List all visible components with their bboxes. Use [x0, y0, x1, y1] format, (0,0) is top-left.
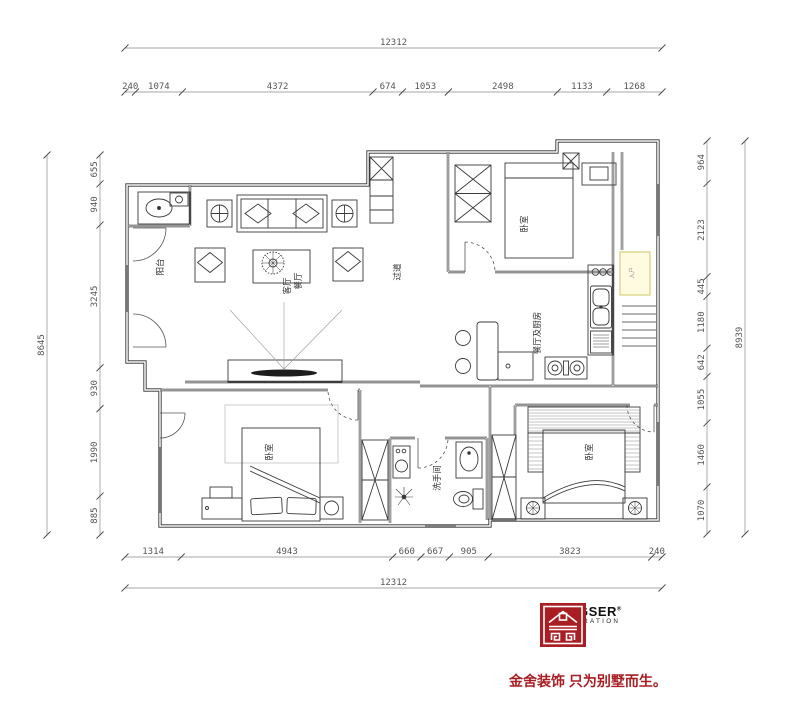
dim-value: 445 — [697, 278, 707, 294]
dim-value: 964 — [697, 154, 707, 170]
logo-bg — [540, 603, 586, 647]
logo-block: KINGSER® DECORATION — [540, 603, 636, 625]
stairs — [622, 306, 656, 346]
dining-table — [456, 322, 499, 380]
room-label-bedroom-top: 卧室 — [519, 215, 529, 233]
cabinet-bedroom-top — [582, 163, 616, 185]
dim-value: 240 — [122, 82, 138, 92]
kitchen-cabinet — [498, 352, 533, 380]
kingser-logo-icon — [540, 603, 586, 647]
dim-value: 905 — [461, 547, 477, 557]
bathroom-door-arc — [418, 438, 448, 468]
fridge — [591, 331, 612, 353]
dim-value: 1055 — [697, 389, 707, 411]
room-label-balcony: 阳台 — [155, 258, 165, 275]
dim-value: 885 — [90, 507, 100, 523]
dim-value: 2498 — [492, 82, 514, 92]
washbasin-unit — [138, 192, 190, 224]
dim-value: 1074 — [148, 82, 170, 92]
bedroom-left-balcony-door — [160, 413, 185, 438]
dim-top-segments: 240107443726741053249811331268 — [122, 82, 666, 96]
dim-value: 1133 — [571, 82, 593, 92]
room-label-living: 客厅 — [282, 277, 292, 295]
headboard — [528, 407, 640, 433]
dim-left-segments: 65594032459301990885 — [90, 152, 104, 539]
dim-value: 655 — [90, 161, 100, 177]
nightstand — [320, 497, 343, 519]
dim-value: 940 — [90, 196, 100, 212]
balcony-door-arc — [133, 314, 166, 347]
room-label-dining: 餐厅 — [293, 272, 303, 290]
dim-left-overall: 8645 — [37, 152, 51, 539]
dim-bottom-overall: 12312 — [122, 578, 666, 592]
registered-mark: ® — [617, 607, 622, 613]
shower-head — [395, 487, 413, 505]
logo-slogan: 金舍装饰 只为别墅而生。 — [495, 673, 681, 690]
shoe-cabinet — [370, 157, 393, 223]
dim-right-overall: 8939 — [735, 138, 749, 538]
outer-walls — [127, 141, 658, 526]
toilet-tank — [473, 489, 483, 509]
room-label-entry: 入户 — [628, 267, 636, 279]
bed-bedroom-right — [521, 407, 647, 519]
dim-value: 1460 — [697, 444, 707, 466]
dim-value: 1314 — [142, 547, 164, 557]
dim-bottom-segments: 131449436606679053823240 — [122, 547, 666, 561]
toilet-bowl — [454, 492, 473, 507]
floor-plan: 阳台 客厅 餐厅 过道 卧室 餐厅及厨房 入户 卧室 洗手间 卧室 123122… — [0, 0, 800, 717]
kitchen-counter — [498, 265, 614, 380]
dim-value: 3823 — [559, 547, 581, 557]
bedroom-top-door-arc — [465, 242, 495, 272]
dim-value: 8645 — [37, 334, 47, 356]
dim-value: 1053 — [415, 82, 437, 92]
dim-value: 3245 — [90, 286, 100, 308]
pillow — [251, 497, 283, 515]
wardrobe-bedroom-top — [455, 165, 491, 222]
dim-value: 4943 — [276, 547, 298, 557]
dim-value: 667 — [427, 547, 443, 557]
wardrobe-corridor-left — [362, 440, 388, 520]
dim-top-overall: 12312 — [122, 38, 666, 52]
dim-right-segments: 96421234451180642105514601070 — [697, 138, 711, 538]
dim-value: 1990 — [90, 442, 100, 464]
windows — [127, 184, 658, 526]
room-label-bathroom: 洗手间 — [432, 465, 442, 491]
balcony-door-arc — [133, 228, 166, 261]
room-label-kitchen: 餐厅及厨房 — [532, 312, 542, 355]
dim-value: 660 — [399, 547, 415, 557]
ac-unit — [563, 153, 579, 169]
dim-value: 240 — [649, 547, 665, 557]
room-label-bedroom-right: 卧室 — [584, 443, 594, 461]
room-label-hallway: 过道 — [392, 263, 402, 281]
wardrobe-corridor-right — [492, 435, 516, 520]
dim-value: 1070 — [697, 500, 707, 522]
dim-value: 930 — [90, 380, 100, 396]
bed-bedroom-left — [202, 405, 343, 521]
dim-value: 12312 — [380, 38, 407, 48]
dim-value: 674 — [380, 82, 396, 92]
gas-stove — [545, 357, 587, 379]
room-label-bedroom-left: 卧室 — [264, 443, 274, 461]
bed-bedroom-top — [505, 163, 573, 258]
dim-value: 8939 — [735, 327, 745, 349]
dim-value: 1180 — [697, 311, 707, 333]
washing-machine — [393, 446, 410, 478]
pillow — [287, 498, 317, 515]
dim-value: 12312 — [380, 578, 407, 588]
floor-plan-sheet: 阳台 客厅 餐厅 过道 卧室 餐厅及厨房 入户 卧室 洗手间 卧室 123122… — [0, 0, 800, 717]
dim-value: 642 — [697, 354, 707, 370]
dim-value: 4372 — [267, 82, 289, 92]
dim-value: 1268 — [624, 82, 646, 92]
tv-stand — [228, 302, 342, 382]
dim-value: 2123 — [697, 219, 707, 241]
